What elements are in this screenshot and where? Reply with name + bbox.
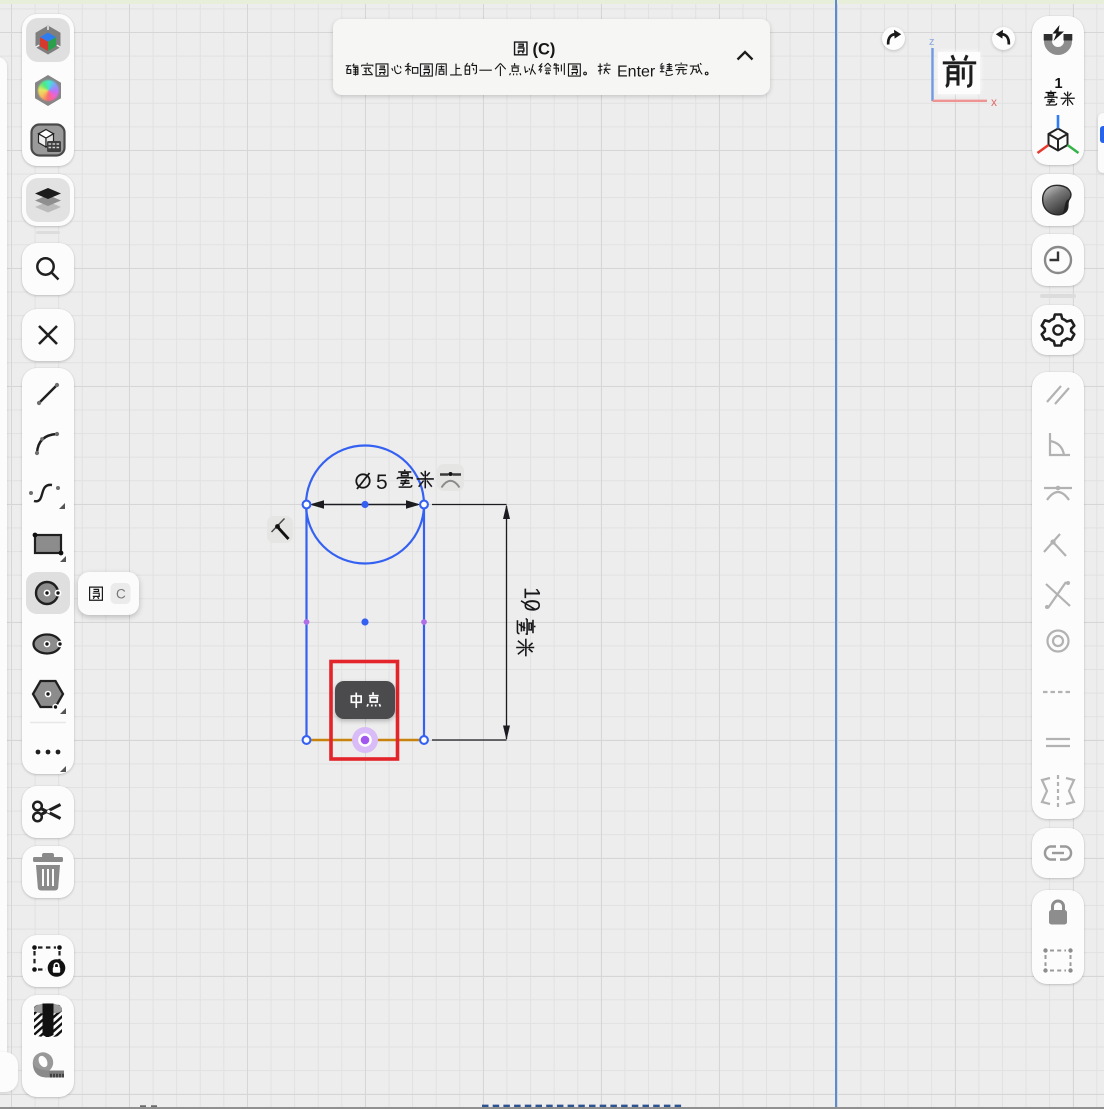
svg-text:x: x [991,95,997,109]
svg-text:(C): (C) [533,41,556,59]
svg-text:C: C [116,587,126,602]
svg-text:Enter: Enter [617,64,656,81]
svg-text:z: z [929,36,935,48]
svg-text:5: 5 [376,471,388,494]
